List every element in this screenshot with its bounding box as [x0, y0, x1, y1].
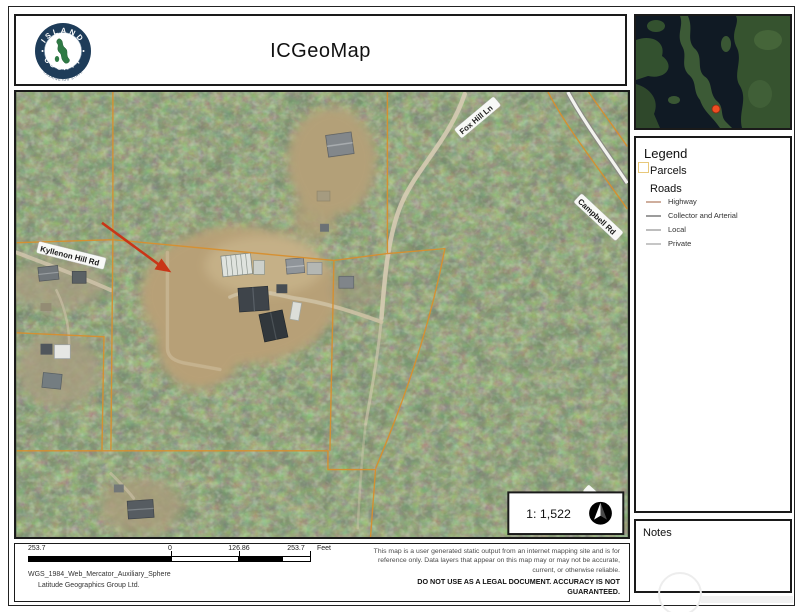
legend-item-collector-arterial: Collector and Arterial: [668, 211, 738, 220]
scalebar-unit: Feet: [317, 545, 331, 552]
disclaimer-line: current, or otherwise reliable.: [368, 566, 620, 575]
notes-title: Notes: [643, 527, 672, 539]
scale-ratio-box: 1: 1,522: [508, 492, 623, 534]
legend-item-roads: Roads: [650, 183, 682, 195]
disclaimer-line: reference only. Data layers that appear …: [368, 556, 620, 565]
local-line-swatch: [646, 229, 661, 231]
page-title: ICGeoMap: [16, 40, 625, 63]
legend-title: Legend: [644, 146, 687, 161]
aerial-imagery: Kyllenon Hill Rd Fox Hill Ln Campbell Rd…: [16, 92, 628, 537]
collector-line-swatch: [646, 215, 661, 217]
disclaimer-line: This map is a user generated static outp…: [368, 547, 620, 556]
parcels-swatch: [638, 162, 649, 173]
map-footer: 253.7 0 126.86 253.7 Feet WGS_1984_Web_M…: [14, 543, 630, 602]
private-line-swatch: [646, 243, 661, 245]
legend-panel: Legend Parcels Roads Highway Collector a…: [634, 136, 792, 513]
overview-location-marker: [712, 105, 720, 113]
print-page: ISLAND COUNTY WASHINGTON STATE ICGeoMap: [0, 0, 801, 612]
legend-item-private: Private: [668, 239, 691, 248]
disclaimer-text: This map is a user generated static outp…: [368, 547, 620, 596]
legend-item-highway: Highway: [668, 197, 697, 206]
credit-text: Latitude Geographics Group Ltd.: [38, 582, 140, 589]
north-arrow-icon: [589, 502, 612, 525]
disclaimer-legal-line: DO NOT USE AS A LEGAL DOCUMENT. ACCURACY…: [368, 577, 620, 596]
notes-panel: Notes: [634, 519, 792, 593]
projection-text: WGS_1984_Web_Mercator_Auxiliary_Sphere: [28, 571, 171, 578]
overview-map-image: [636, 16, 790, 128]
watermark-logo: [658, 572, 702, 612]
scalebar-label-right: 253.7: [282, 545, 310, 552]
page-header: ISLAND COUNTY WASHINGTON STATE ICGeoMap: [14, 14, 627, 86]
scalebar-segment: [28, 556, 171, 562]
legend-item-parcels: Parcels: [650, 165, 687, 177]
watermark-text: [701, 596, 793, 603]
scale-ratio-text: 1: 1,522: [526, 507, 571, 521]
scalebar-segment: [282, 556, 311, 562]
scalebar-label-farleft: 253.7: [28, 545, 46, 552]
highway-line-swatch: [646, 201, 661, 203]
scalebar-segment: [171, 556, 239, 562]
overview-map: [634, 14, 792, 130]
legend-item-local: Local: [668, 225, 686, 234]
scalebar-segment: [239, 556, 282, 562]
map-canvas: Kyllenon Hill Rd Fox Hill Ln Campbell Rd…: [14, 90, 630, 539]
